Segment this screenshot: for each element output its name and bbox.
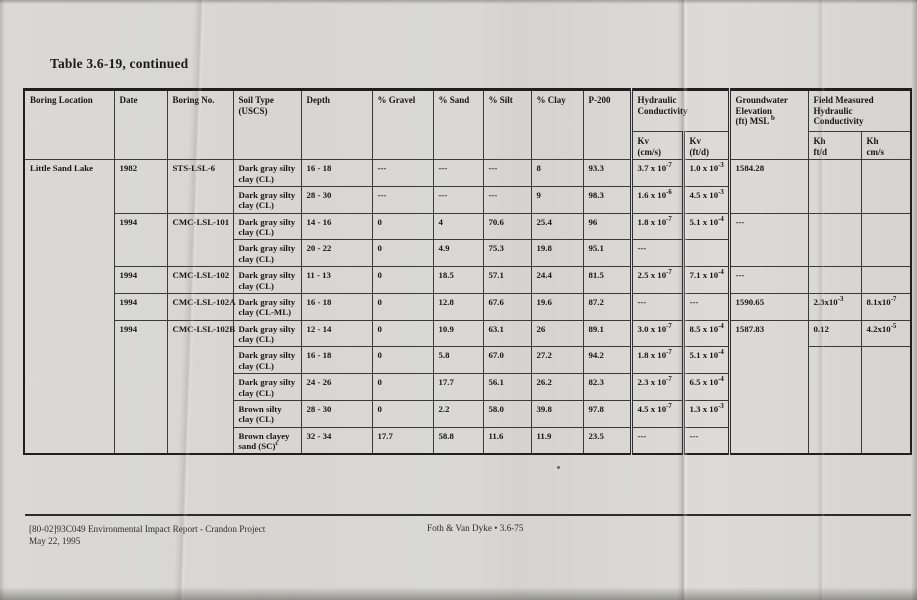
cell-gravel: 0 — [372, 320, 433, 347]
scan-edge-shadow — [0, 0, 5, 600]
groundwater-header-text: Groundwater Elevation (ft) MSL — [736, 95, 788, 126]
col-header-sand: % Sand — [433, 90, 483, 160]
cell-depth: 12 - 14 — [301, 320, 372, 347]
cell-boring-no: CMC-LSL-102B — [167, 320, 233, 454]
cell-gravel: 0 — [372, 293, 433, 320]
cell-clay: 19.6 — [531, 293, 583, 320]
footer-doc-id: [80-02]93C049 Environmental Impact Repor… — [29, 523, 265, 535]
scan-edge-shadow — [0, 587, 917, 600]
cell-soil-type: Dark gray silty clay (CL) — [233, 240, 301, 267]
cell-p200: 93.3 — [583, 160, 631, 187]
value-mantissa: --- — [638, 431, 647, 441]
value-exponent: -7 — [666, 323, 672, 330]
col-header-boring-no: Boring No. — [167, 90, 233, 160]
value-mantissa: 0.12 — [814, 324, 829, 334]
cell-depth: 28 - 30 — [301, 400, 372, 427]
cell-gravel: --- — [372, 186, 433, 213]
cell-gw-elev: --- — [729, 267, 808, 294]
cell-kv-ftd: 8.5 x 10-4 — [683, 320, 729, 347]
value-mantissa: 6.5 x 10 — [690, 377, 719, 387]
cell-p200: 97.8 — [583, 400, 631, 427]
boring-data-table: Boring Location Date Boring No. Soil Typ… — [23, 88, 912, 455]
cell-silt: 58.0 — [483, 400, 531, 427]
value-exponent: -5 — [891, 323, 897, 330]
cell-depth: 24 - 26 — [301, 374, 372, 401]
cell-kh-cms — [861, 160, 911, 214]
col-header-clay: % Clay — [531, 90, 583, 160]
cell-sand: 4 — [433, 213, 483, 240]
soil-text: Dark gray silty clay (CL) — [239, 243, 296, 263]
soil-text: Brown clayey sand (SC) — [239, 431, 290, 451]
value-exponent: -6 — [666, 189, 672, 196]
cell-clay: 19.8 — [531, 240, 583, 267]
col-header-soil-type: Soil Type (USCS) — [233, 90, 301, 160]
cell-soil-type: Dark gray silty clay (CL) — [233, 320, 301, 347]
value-exponent: -7 — [666, 350, 672, 357]
footer-divider — [25, 514, 911, 516]
soil-text: Dark gray silty clay (CL) — [239, 270, 296, 290]
value-exponent: -4 — [718, 376, 724, 383]
cell-kv-cms: 1.8 x 10-7 — [631, 347, 683, 374]
cell-kv-ftd: 5.1 x 10-4 — [683, 213, 729, 240]
soil-text: Dark gray silty clay (CL) — [239, 190, 296, 210]
value-mantissa: --- — [638, 297, 647, 307]
col-header-kv-ftd: Kv (ft/d) — [683, 132, 729, 160]
cell-p200: 96 — [583, 213, 631, 240]
value-mantissa: --- — [638, 243, 647, 253]
soil-text: Dark gray silty clay (CL) — [239, 217, 296, 237]
cell-p200: 87.2 — [583, 293, 631, 320]
value-mantissa: --- — [690, 297, 699, 307]
cell-p200: 82.3 — [583, 374, 631, 401]
cell-sand: 58.8 — [433, 427, 483, 454]
soil-text: Dark gray silty clay (CL) — [239, 350, 296, 370]
cell-sand: --- — [433, 160, 483, 187]
cell-depth: 32 - 34 — [301, 427, 372, 454]
cell-gravel: 0 — [372, 240, 433, 267]
value-exponent: -3 — [838, 296, 844, 303]
cell-clay: 39.8 — [531, 400, 583, 427]
col-header-silt: % Silt — [483, 90, 531, 160]
cell-kv-ftd: 5.1 x 10-4 — [683, 347, 729, 374]
soil-text: Brown silty clay (CL) — [239, 404, 282, 424]
value-mantissa: --- — [690, 431, 699, 441]
value-mantissa: 4.2x10 — [867, 324, 891, 334]
value-mantissa: 4.5 x 10 — [690, 190, 719, 200]
col-header-field-measured: Field Measured Hydraulic Conductivity — [808, 90, 911, 132]
cell-gravel: 17.7 — [372, 427, 433, 454]
value-mantissa: 2.3 x 10 — [638, 377, 667, 387]
footer-page-ref: Foth & Van Dyke • 3.6-75 — [427, 523, 523, 533]
cell-date: 1994 — [114, 293, 167, 320]
cell-p200: 95.1 — [583, 240, 631, 267]
col-header-kh-cms: Kh cm/s — [861, 132, 911, 160]
col-header-gravel: % Gravel — [372, 90, 433, 160]
cell-sand: 10.9 — [433, 320, 483, 347]
cell-depth: 16 - 18 — [301, 293, 372, 320]
cell-clay: 8 — [531, 160, 583, 187]
col-header-p200: P-200 — [583, 90, 631, 160]
cell-depth: 11 - 13 — [301, 267, 372, 294]
col-header-hydraulic-conductivity: Hydraulic Conductivity — [631, 90, 729, 132]
value-exponent: -4 — [718, 269, 724, 276]
cell-silt: 75.3 — [483, 240, 531, 267]
soil-text: Dark gray silty clay (CL) — [239, 324, 296, 344]
value-exponent: -7 — [666, 216, 672, 223]
col-header-kv-cms: Kv (cm/s) — [631, 132, 683, 160]
table-row: 1994 CMC-LSL-101 Dark gray silty clay (C… — [24, 213, 911, 240]
cell-kh-ftd: 2.3x10-3 — [808, 293, 861, 320]
value-exponent: -7 — [666, 403, 672, 410]
cell-gravel: 0 — [372, 374, 433, 401]
cell-kh-ftd — [808, 347, 861, 455]
cell-silt: --- — [483, 186, 531, 213]
cell-gw-elev: 1584.28 — [729, 160, 808, 214]
cell-kh-ftd — [808, 160, 861, 214]
cell-gw-elev: --- — [729, 213, 808, 267]
cell-kh-ftd — [808, 213, 861, 267]
cell-sand: 12.8 — [433, 293, 483, 320]
cell-p200: 98.3 — [583, 186, 631, 213]
cell-date: 1994 — [114, 213, 167, 267]
cell-p200: 89.1 — [583, 320, 631, 347]
cell-date: 1982 — [114, 160, 167, 214]
col-header-groundwater-elevation: Groundwater Elevation (ft) MSL b — [729, 90, 808, 160]
cell-sand: 4.9 — [433, 240, 483, 267]
value-mantissa: 1.3 x 10 — [690, 404, 719, 414]
cell-sand: 5.8 — [433, 347, 483, 374]
cell-kv-ftd: 1.0 x 10-3 — [683, 160, 729, 187]
table-row: 1994 CMC-LSL-102A Dark gray silty clay (… — [24, 293, 911, 320]
cell-date: 1994 — [114, 267, 167, 294]
col-header-boring-location: Boring Location — [24, 90, 114, 160]
footer-date: May 22, 1995 — [29, 535, 265, 547]
cell-clay: 9 — [531, 186, 583, 213]
cell-kv-cms: --- — [631, 427, 683, 454]
cell-soil-type: Brown clayey sand (SC)c — [233, 427, 301, 454]
value-mantissa: 1.6 x 10 — [638, 190, 667, 200]
footnote-marker-b: b — [771, 115, 775, 122]
cell-kh-ftd — [808, 267, 861, 294]
cell-silt: 67.0 — [483, 347, 531, 374]
cell-kv-ftd: 7.1 x 10-4 — [683, 267, 729, 294]
cell-sand: 17.7 — [433, 374, 483, 401]
cell-kv-cms: 3.0 x 10-7 — [631, 320, 683, 347]
cell-kv-cms: 1.8 x 10-7 — [631, 213, 683, 240]
cell-sand: 2.2 — [433, 400, 483, 427]
value-exponent: -4 — [718, 216, 724, 223]
col-header-date: Date — [114, 90, 167, 160]
soil-text: Dark gray silty clay (CL-ML) — [239, 297, 296, 317]
cell-silt: 57.1 — [483, 267, 531, 294]
cell-kv-ftd: --- — [683, 427, 729, 454]
cell-kv-cms: 1.6 x 10-6 — [631, 186, 683, 213]
value-mantissa: 2.3x10 — [814, 297, 838, 307]
cell-boring-no: CMC-LSL-101 — [167, 213, 233, 267]
cell-gw-elev: 1590.65 — [729, 293, 808, 320]
table-row: 1994 CMC-LSL-102 Dark gray silty clay (C… — [24, 267, 911, 294]
value-mantissa: 8.1x10 — [867, 297, 891, 307]
cell-sand: 18.5 — [433, 267, 483, 294]
value-exponent: -7 — [891, 296, 897, 303]
cell-kv-ftd: 6.5 x 10-4 — [683, 374, 729, 401]
value-mantissa: 3.7 x 10 — [638, 163, 667, 173]
cell-gravel: 0 — [372, 267, 433, 294]
cell-soil-type: Dark gray silty clay (CL-ML) — [233, 293, 301, 320]
value-exponent: -3 — [718, 162, 724, 169]
value-mantissa: 3.0 x 10 — [638, 324, 667, 334]
cell-clay: 26.2 — [531, 374, 583, 401]
value-mantissa: 7.1 x 10 — [690, 270, 719, 280]
scan-edge-shadow — [0, 0, 917, 4]
cell-depth: 20 - 22 — [301, 240, 372, 267]
cell-kv-cms: 4.5 x 10-7 — [631, 400, 683, 427]
cell-kh-ftd: 0.12 — [808, 320, 861, 347]
value-exponent: -7 — [666, 162, 672, 169]
cell-kv-cms: 2.5 x 10-7 — [631, 267, 683, 294]
cell-silt: 56.1 — [483, 374, 531, 401]
cell-boring-no: STS-LSL-6 — [167, 160, 233, 214]
cell-boring-no: CMC-LSL-102A — [167, 293, 233, 320]
cell-soil-type: Dark gray silty clay (CL) — [233, 374, 301, 401]
value-mantissa: 1.0 x 10 — [690, 163, 719, 173]
cell-soil-type: Dark gray silty clay (CL) — [233, 160, 301, 187]
scan-speck — [557, 466, 560, 469]
value-exponent: -4 — [718, 350, 724, 357]
cell-clay: 26 — [531, 320, 583, 347]
cell-kv-ftd: 4.5 x 10-3 — [683, 186, 729, 213]
cell-date: 1994 — [114, 320, 167, 454]
value-mantissa: 4.5 x 10 — [638, 404, 667, 414]
cell-p200: 23.5 — [583, 427, 631, 454]
cell-gravel: 0 — [372, 347, 433, 374]
value-exponent: -3 — [718, 189, 724, 196]
value-mantissa: 5.1 x 10 — [690, 217, 719, 227]
value-exponent: -7 — [666, 269, 672, 276]
cell-kv-ftd: 1.3 x 10-3 — [683, 400, 729, 427]
cell-gravel: 0 — [372, 213, 433, 240]
cell-silt: 67.6 — [483, 293, 531, 320]
cell-gw-elev: 1587.83 — [729, 320, 808, 454]
table-row: 1994 CMC-LSL-102B Dark gray silty clay (… — [24, 320, 911, 347]
cell-p200: 94.2 — [583, 347, 631, 374]
cell-gravel: --- — [372, 160, 433, 187]
cell-kv-cms: --- — [631, 293, 683, 320]
soil-text: Dark gray silty clay (CL) — [239, 377, 296, 397]
cell-clay: 24.4 — [531, 267, 583, 294]
soil-text: Dark gray silty clay (CL) — [239, 163, 296, 183]
cell-soil-type: Dark gray silty clay (CL) — [233, 347, 301, 374]
cell-kv-cms: 2.3 x 10-7 — [631, 374, 683, 401]
col-header-depth: Depth — [301, 90, 372, 160]
value-mantissa: 8.5 x 10 — [690, 324, 719, 334]
value-mantissa: 1.8 x 10 — [638, 350, 667, 360]
cell-depth: 14 - 16 — [301, 213, 372, 240]
cell-silt: 11.6 — [483, 427, 531, 454]
cell-sand: --- — [433, 186, 483, 213]
col-header-kh-ftd: Kh ft/d — [808, 132, 861, 160]
cell-silt: 70.6 — [483, 213, 531, 240]
value-mantissa: 1.8 x 10 — [638, 217, 667, 227]
page-title: Table 3.6-19, continued — [50, 56, 188, 72]
cell-silt: 63.1 — [483, 320, 531, 347]
cell-clay: 11.9 — [531, 427, 583, 454]
cell-kh-cms: 8.1x10-7 — [861, 293, 911, 320]
cell-soil-type: Dark gray silty clay (CL) — [233, 267, 301, 294]
cell-kh-cms — [861, 267, 911, 294]
cell-soil-type: Dark gray silty clay (CL) — [233, 186, 301, 213]
cell-kv-cms: 3.7 x 10-7 — [631, 160, 683, 187]
value-exponent: -7 — [666, 376, 672, 383]
cell-depth: 16 - 18 — [301, 160, 372, 187]
cell-gravel: 0 — [372, 400, 433, 427]
cell-kh-cms: 4.2x10-5 — [861, 320, 911, 347]
cell-kh-cms — [861, 347, 911, 455]
footnote-marker-c: c — [275, 440, 278, 447]
value-mantissa: 2.5 x 10 — [638, 270, 667, 280]
cell-kv-cms: --- — [631, 240, 683, 267]
cell-kv-ftd: --- — [683, 293, 729, 320]
value-exponent: -3 — [718, 403, 724, 410]
footer-left: [80-02]93C049 Environmental Impact Repor… — [29, 523, 265, 548]
cell-soil-type: Dark gray silty clay (CL) — [233, 213, 301, 240]
cell-clay: 25.4 — [531, 213, 583, 240]
cell-silt: --- — [483, 160, 531, 187]
cell-soil-type: Brown silty clay (CL) — [233, 400, 301, 427]
value-exponent: -4 — [718, 323, 724, 330]
cell-kh-cms — [861, 213, 911, 267]
cell-depth: 16 - 18 — [301, 347, 372, 374]
cell-location: Little Sand Lake — [24, 160, 114, 455]
cell-depth: 28 - 30 — [301, 186, 372, 213]
cell-p200: 81.5 — [583, 267, 631, 294]
cell-kv-ftd — [683, 240, 729, 267]
value-mantissa: 5.1 x 10 — [690, 350, 719, 360]
table-row: Little Sand Lake 1982 STS-LSL-6 Dark gra… — [24, 160, 911, 187]
cell-clay: 27.2 — [531, 347, 583, 374]
cell-boring-no: CMC-LSL-102 — [167, 267, 233, 294]
